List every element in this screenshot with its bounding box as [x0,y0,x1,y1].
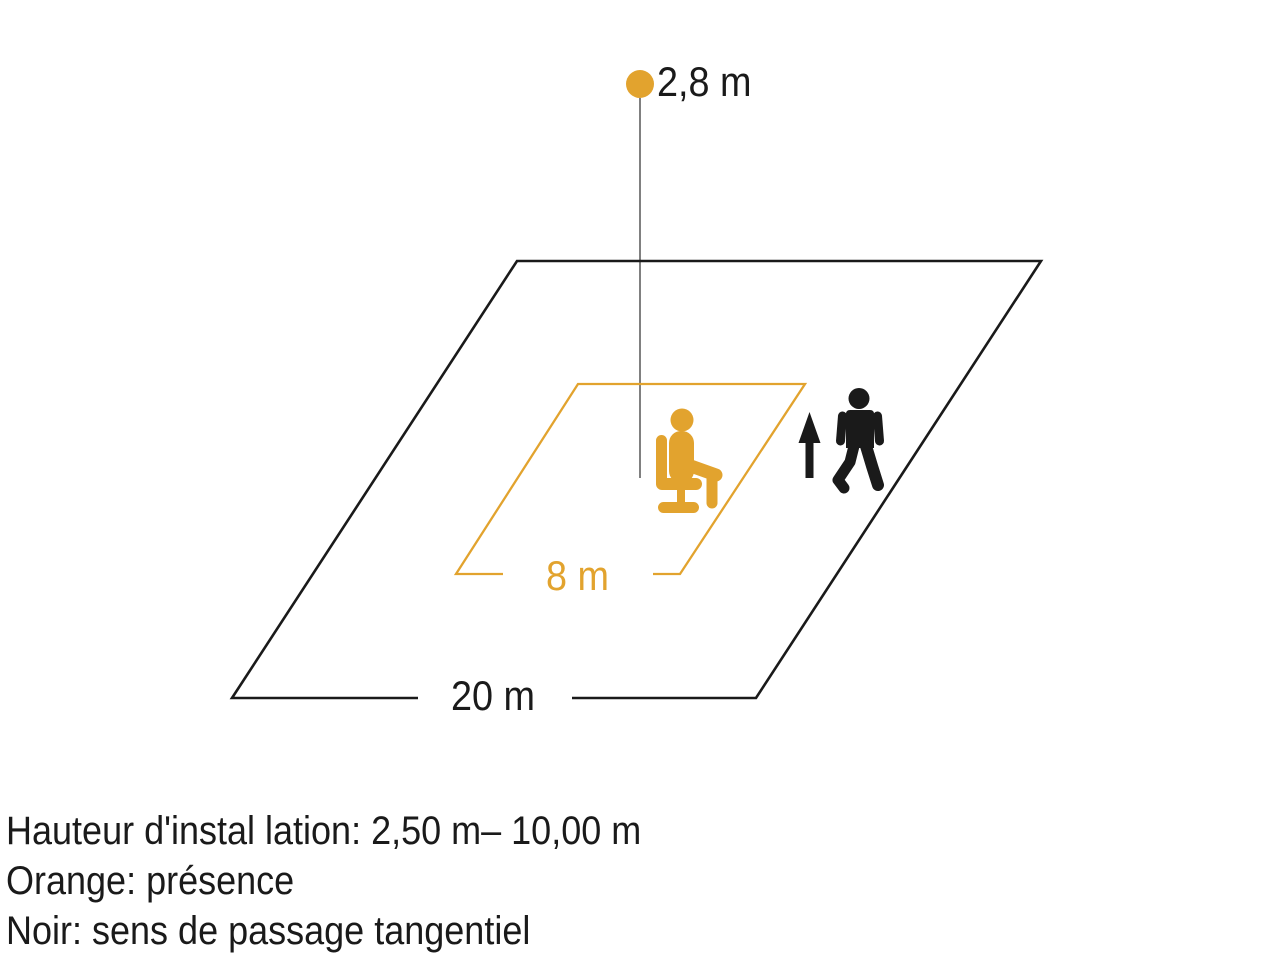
legend-black-tangential: Noir: sens de passage tangentiel [6,911,530,951]
sensor-dot [626,70,654,98]
direction-arrow-icon [799,412,821,478]
inner-zone-label: 8 m [546,555,609,597]
legend-installation-height: Hauteur d'instal lation: 2,50 m– 10,00 m [6,811,641,851]
outer-detection-area [232,261,1041,698]
sensor-height-label: 2,8 m [657,61,752,103]
outer-zone-label: 20 m [451,675,535,717]
walking-person-icon [838,388,880,488]
seated-person-icon [656,409,716,514]
legend-orange-presence: Orange: présence [6,861,294,901]
sensor-detection-diagram: 2,8 m 8 m 20 m Hauteur d'instal lation: … [0,0,1280,960]
inner-detection-area [456,384,805,574]
